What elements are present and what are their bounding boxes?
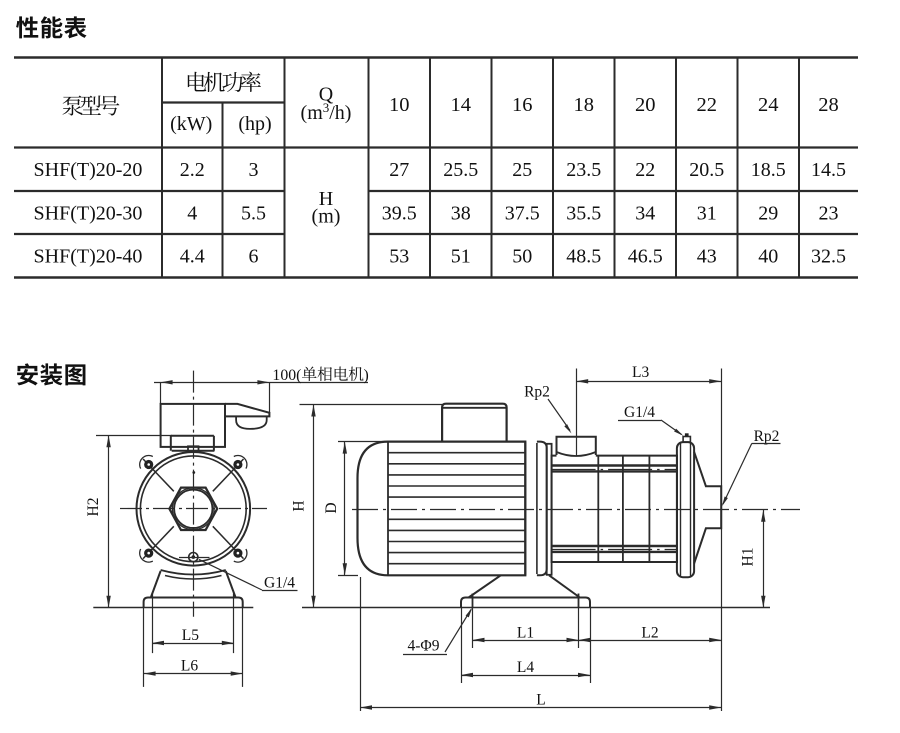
svg-text:10: 10	[389, 94, 410, 116]
svg-text:H1: H1	[740, 548, 757, 567]
svg-text:31: 31	[697, 203, 717, 225]
svg-text:6: 6	[249, 246, 259, 268]
svg-text:18.5: 18.5	[751, 159, 786, 181]
svg-text:4: 4	[187, 203, 197, 225]
svg-text:39.5: 39.5	[382, 203, 417, 225]
svg-text:L6: L6	[181, 658, 198, 675]
svg-text:L4: L4	[517, 659, 534, 676]
svg-text:37.5: 37.5	[505, 203, 540, 225]
svg-text:(m): (m)	[312, 206, 341, 228]
svg-text:32.5: 32.5	[811, 246, 846, 268]
svg-text:14: 14	[451, 94, 472, 116]
svg-text:24: 24	[758, 94, 779, 116]
svg-text:G1/4: G1/4	[624, 404, 655, 421]
svg-text:29: 29	[758, 203, 778, 225]
svg-text:D: D	[323, 502, 340, 513]
svg-text:18: 18	[574, 94, 595, 116]
svg-text:20.5: 20.5	[689, 159, 724, 181]
svg-text:38: 38	[451, 203, 471, 225]
svg-text:53: 53	[389, 246, 409, 268]
svg-text:28: 28	[818, 94, 839, 116]
svg-text:): )	[364, 367, 369, 384]
svg-text:G1/4: G1/4	[264, 575, 295, 592]
svg-text:SHF(T)20-40: SHF(T)20-40	[34, 246, 143, 268]
svg-text:16: 16	[512, 94, 533, 116]
svg-text:40: 40	[758, 246, 778, 268]
svg-text:23: 23	[819, 203, 839, 225]
svg-text:SHF(T)20-20: SHF(T)20-20	[34, 159, 143, 181]
svg-text:(hp): (hp)	[238, 113, 271, 135]
svg-text:34: 34	[635, 203, 655, 225]
svg-text:46.5: 46.5	[628, 246, 663, 268]
svg-text:22: 22	[697, 94, 718, 116]
svg-text:L: L	[536, 692, 545, 709]
svg-text:48.5: 48.5	[566, 246, 601, 268]
svg-text:Rp2: Rp2	[524, 384, 550, 401]
svg-text:Rp2: Rp2	[754, 428, 780, 445]
svg-text:H2: H2	[85, 498, 102, 517]
svg-text:(kW): (kW)	[170, 113, 212, 135]
svg-text:SHF(T)20-30: SHF(T)20-30	[34, 203, 143, 225]
svg-text:2.2: 2.2	[180, 159, 205, 181]
svg-text:50: 50	[512, 246, 532, 268]
svg-text:5.5: 5.5	[241, 203, 266, 225]
svg-text:L5: L5	[182, 627, 199, 644]
svg-text:L1: L1	[517, 625, 534, 642]
svg-text:35.5: 35.5	[566, 203, 601, 225]
svg-text:23.5: 23.5	[566, 159, 601, 181]
svg-text:L3: L3	[632, 364, 649, 381]
svg-text:L2: L2	[641, 625, 658, 642]
svg-text:25.5: 25.5	[443, 159, 478, 181]
svg-text:25: 25	[512, 159, 532, 181]
svg-text:H: H	[291, 500, 308, 511]
svg-text:(m3/h): (m3/h)	[301, 100, 352, 124]
svg-text:27: 27	[389, 159, 409, 181]
svg-text:20: 20	[635, 94, 656, 116]
svg-text:4.4: 4.4	[180, 246, 205, 268]
svg-text:4-Φ9: 4-Φ9	[408, 638, 440, 655]
svg-text:43: 43	[697, 246, 717, 268]
svg-text:100(: 100(	[272, 367, 301, 384]
svg-text:14.5: 14.5	[811, 159, 846, 181]
svg-text:3: 3	[249, 159, 259, 181]
svg-text:51: 51	[451, 246, 471, 268]
svg-text:22: 22	[635, 159, 655, 181]
